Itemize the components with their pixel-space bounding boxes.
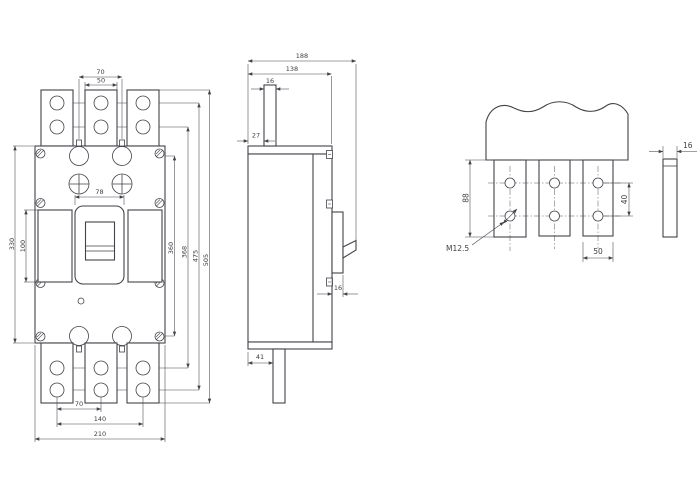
svg-text:16: 16 [266,77,274,85]
svg-text:368: 368 [181,246,189,258]
svg-text:40: 40 [620,195,629,205]
svg-text:140: 140 [94,415,106,423]
front-marking-dot [78,298,84,304]
terminal-detail-view: 88 40 50 M12.5 [446,102,697,262]
svg-text:188: 188 [296,52,308,60]
side-top-cap [248,146,332,154]
breaker-body-side [248,154,332,342]
svg-text:70: 70 [96,68,104,76]
svg-text:70: 70 [75,400,83,408]
side-raised-cover [332,212,343,273]
dim-tab-width: 50 [583,242,613,262]
detail-terminal-tabs [494,160,613,237]
svg-text:475: 475 [192,250,200,262]
svg-text:88: 88 [462,193,471,203]
toggle-handle-front [75,206,124,284]
toggle-handle-side [343,241,356,259]
svg-text:50: 50 [593,247,603,256]
front-view: 70 50 78 100 330 [8,68,210,442]
svg-text:27: 27 [252,132,260,140]
side-view: 188 138 16 27 16 [237,52,358,403]
right-recess-panel [128,210,162,282]
dim-outer-hole-span: 475 [192,103,200,390]
svg-text:210: 210 [94,430,106,438]
svg-text:138: 138 [286,65,298,73]
svg-text:16: 16 [683,141,693,150]
svg-text:50: 50 [97,77,105,85]
dim-tab-length: 88 [462,160,495,237]
svg-text:505: 505 [202,254,210,266]
dim-detail-tab-thickness: 16 [649,141,697,158]
dim-bottom-tab-offset: 41 [248,352,273,366]
svg-text:100: 100 [19,240,27,252]
detail-tab-edge-view [663,159,677,237]
top-terminal-tabs [41,90,159,146]
svg-text:M12.5: M12.5 [446,244,469,253]
dim-body-depth: 138 [248,65,332,144]
svg-text:330: 330 [8,238,16,250]
svg-text:360: 360 [167,242,175,254]
side-bottom-cap [248,342,332,349]
svg-text:78: 78 [95,188,103,196]
svg-text:16: 16 [334,284,342,292]
detail-body-broken-block [486,102,628,160]
svg-text:41: 41 [256,353,264,361]
dim-screw-span: 360 [167,156,175,336]
side-bottom-terminal-bar [273,349,285,403]
breaker-outline-drawing: 70 50 78 100 330 [0,0,700,500]
dim-overall-height: 505 [202,90,210,403]
left-recess-panel [38,210,72,282]
bottom-terminal-tabs [41,343,159,403]
drawing-page: 70 50 78 100 330 [0,0,700,500]
dim-top-tab-width: 50 [85,77,117,91]
dim-inner-hole-span: 368 [181,127,189,368]
dim-bottom-hole-span: 140 [57,415,143,424]
side-top-terminal-bar [264,85,276,146]
